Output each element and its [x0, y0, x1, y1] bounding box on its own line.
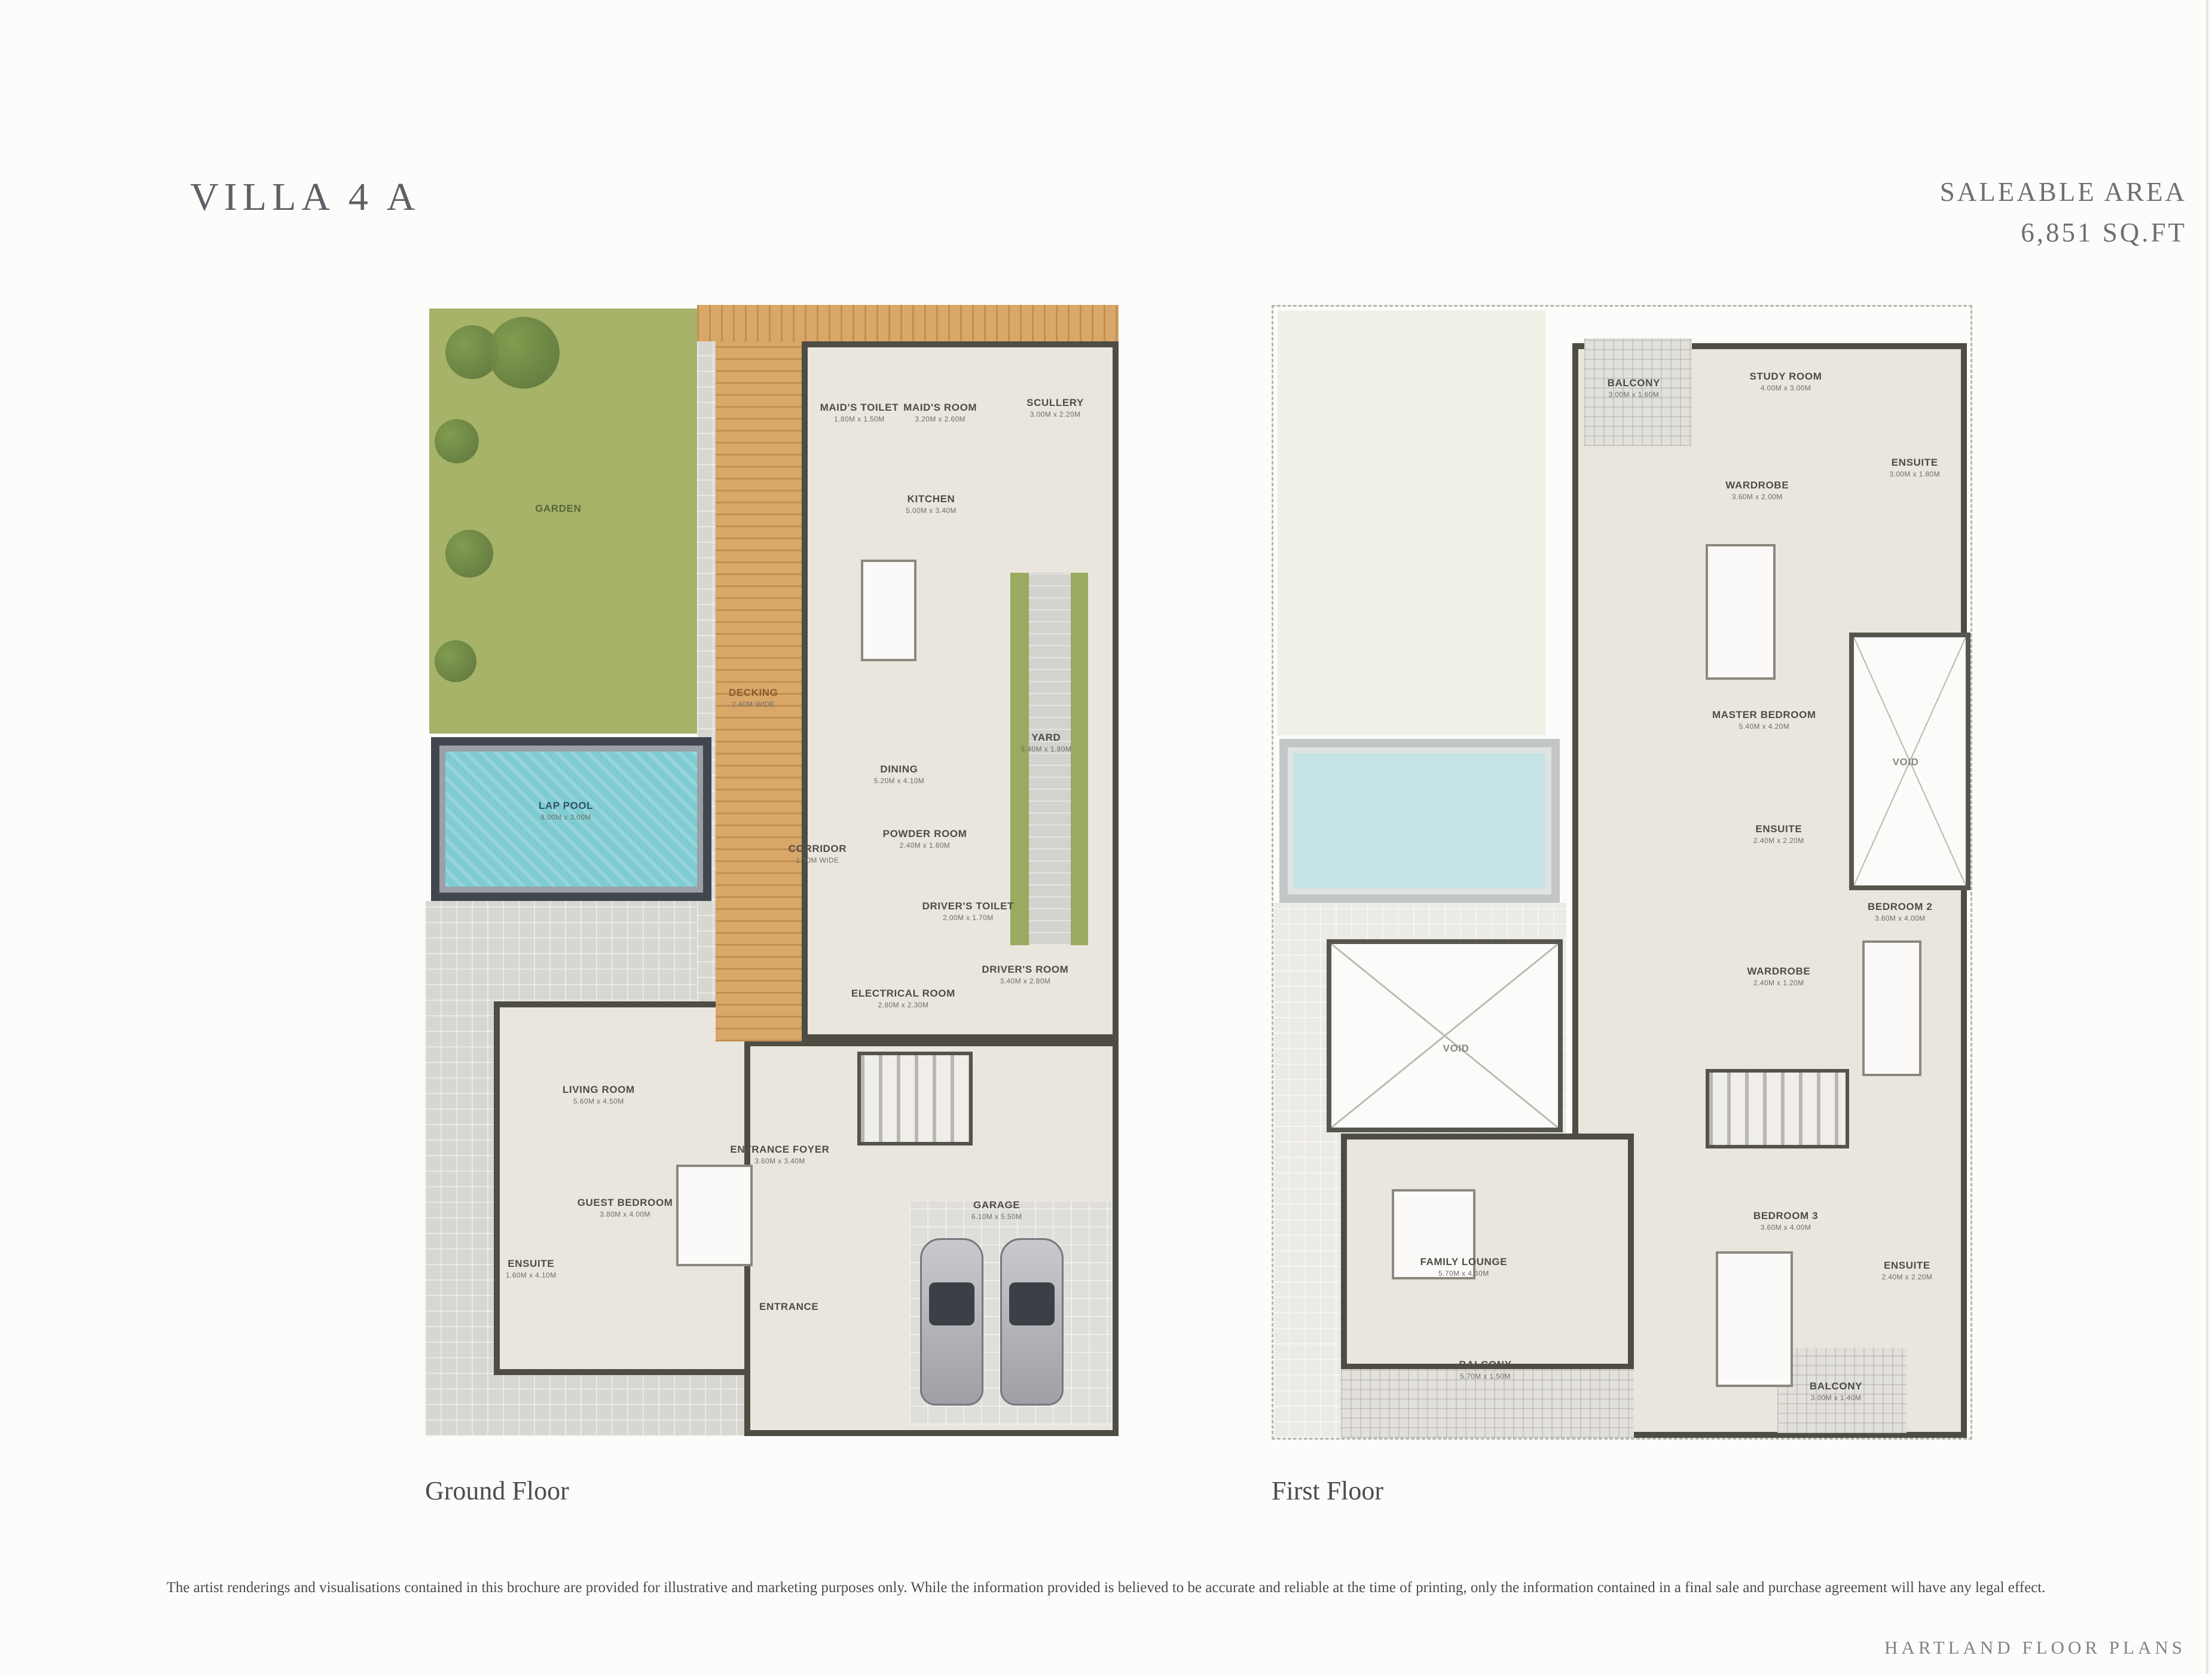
room-dims: 5.00M x 3.40M: [906, 506, 957, 515]
room-name: BALCONY: [1459, 1359, 1511, 1371]
room-dims: 3.00M x 1.60M: [1608, 390, 1660, 399]
room-label-powder-room: POWDER ROOM2.40M x 1.60M: [883, 828, 967, 850]
room-dims: 6.10M x 5.50M: [971, 1212, 1022, 1221]
room-label-balcony: BALCONY3.00M x 1.40M: [1810, 1380, 1862, 1402]
room-name: VOID: [1443, 1043, 1469, 1055]
room-label-scullery: SCULLERY3.00M x 2.20M: [1026, 397, 1084, 418]
room-name: MASTER BEDROOM: [1712, 709, 1816, 721]
room-name: FAMILY LOUNGE: [1420, 1256, 1507, 1268]
first-floor-plan: BALCONY3.00M x 1.60MSTUDY ROOM4.00M x 3.…: [1272, 305, 1972, 1440]
room-dims: 1.80M x 1.50M: [820, 415, 899, 423]
room-dims: 5.70M x 4.60M: [1420, 1269, 1507, 1278]
room-label-entrance: ENTRANCE: [759, 1301, 818, 1313]
saleable-area-value: 6,851 SQ.FT: [1940, 213, 2187, 253]
room-name: WARDROBE: [1725, 479, 1789, 491]
room-dims: 3.60M x 4.00M: [1868, 914, 1932, 922]
room-label-kitchen: KITCHEN5.00M x 3.40M: [906, 493, 957, 515]
brochure-page: VILLA 4 A SALEABLE AREA 6,851 SQ.FT: [0, 0, 2212, 1674]
saleable-area-label: SALEABLE AREA: [1940, 172, 2187, 213]
room-dims: 5.70M x 1.50M: [1459, 1372, 1511, 1380]
ground-floor-labels: GARDENDECKING2.40M WIDELAP POOL8.00M x 3…: [425, 305, 1122, 1436]
room-label-wardrobe: WARDROBE3.60M x 2.00M: [1725, 479, 1789, 501]
room-label-maid-s-room: MAID'S ROOM3.20M x 2.60M: [903, 402, 977, 423]
first-floor-caption: First Floor: [1272, 1476, 1383, 1506]
room-name: VOID: [1893, 756, 1919, 768]
room-dims: 3.40M x 2.80M: [982, 977, 1068, 985]
room-name: GARDEN: [535, 503, 581, 515]
room-dims: 2.40M x 2.20M: [1753, 836, 1804, 845]
room-label-wardrobe: WARDROBE2.40M x 1.20M: [1747, 966, 1810, 987]
page-edge-line: [2206, 0, 2208, 1674]
room-name: ENSUITE: [1753, 823, 1804, 835]
room-dims: 3.60M x 4.00M: [1753, 1223, 1818, 1232]
room-name: MAID'S TOILET: [820, 402, 899, 414]
page-title: VILLA 4 A: [190, 175, 420, 220]
room-label-electrical-room: ELECTRICAL ROOM2.80M x 2.30M: [851, 988, 955, 1009]
room-name: LIVING ROOM: [563, 1084, 635, 1096]
room-label-dining: DINING5.20M x 4.10M: [874, 763, 925, 785]
room-label-maid-s-toilet: MAID'S TOILET1.80M x 1.50M: [820, 402, 899, 423]
room-label-corridor: CORRIDOR1.70M WIDE: [789, 843, 847, 865]
room-dims: 2.80M x 2.30M: [851, 1001, 955, 1009]
room-dims: 3.60M x 3.40M: [730, 1157, 829, 1165]
room-dims: 2.40M x 1.20M: [1747, 979, 1810, 987]
room-dims: 3.80M x 4.00M: [578, 1210, 673, 1218]
room-dims: 2.40M x 2.20M: [1882, 1273, 1933, 1281]
room-name: KITCHEN: [906, 493, 957, 505]
room-label-balcony: BALCONY3.00M x 1.60M: [1608, 377, 1660, 399]
room-name: MAID'S ROOM: [903, 402, 977, 414]
room-name: DECKING: [729, 687, 778, 699]
room-label-guest-bedroom: GUEST BEDROOM3.80M x 4.00M: [578, 1197, 673, 1218]
room-label-void: VOID: [1443, 1043, 1469, 1055]
room-label-master-bedroom: MASTER BEDROOM5.40M x 4.20M: [1712, 709, 1816, 731]
room-name: POWDER ROOM: [883, 828, 967, 840]
room-label-decking: DECKING2.40M WIDE: [729, 687, 778, 708]
room-label-void: VOID: [1893, 756, 1919, 768]
room-dims: 2.40M x 1.60M: [883, 841, 967, 850]
room-dims: 4.00M x 3.00M: [1750, 384, 1822, 392]
room-name: BALCONY: [1810, 1380, 1862, 1392]
ground-floor-plan: GARDENDECKING2.40M WIDELAP POOL8.00M x 3…: [425, 305, 1122, 1436]
room-name: BEDROOM 3: [1753, 1210, 1818, 1222]
room-name: GUEST BEDROOM: [578, 1197, 673, 1209]
room-name: GARAGE: [971, 1199, 1022, 1211]
room-dims: 5.40M x 4.20M: [1712, 722, 1816, 731]
room-label-ensuite: ENSUITE2.40M x 2.20M: [1753, 823, 1804, 845]
room-label-entrance-foyer: ENTRANCE FOYER3.60M x 3.40M: [730, 1144, 829, 1165]
room-dims: 3.00M x 1.80M: [1889, 470, 1940, 478]
room-name: LAP POOL: [539, 800, 593, 812]
room-dims: 3.20M x 2.60M: [903, 415, 977, 423]
room-label-ensuite: ENSUITE2.40M x 2.20M: [1882, 1260, 1933, 1281]
room-label-garage: GARAGE6.10M x 5.50M: [971, 1199, 1022, 1221]
room-name: DRIVER'S TOILET: [922, 900, 1014, 912]
room-name: ELECTRICAL ROOM: [851, 988, 955, 1000]
room-label-living-room: LIVING ROOM5.60M x 4.50M: [563, 1084, 635, 1105]
disclaimer-text: The artist renderings and visualisations…: [0, 1580, 2212, 1596]
room-name: ENTRANCE: [759, 1301, 818, 1313]
room-name: ENSUITE: [506, 1258, 557, 1270]
room-name: ENTRANCE FOYER: [730, 1144, 829, 1156]
room-dims: 3.00M x 2.20M: [1026, 410, 1084, 418]
room-label-lap-pool: LAP POOL8.00M x 3.00M: [539, 800, 593, 821]
room-name: BALCONY: [1608, 377, 1660, 389]
room-label-yard: YARD5.40M x 1.80M: [1021, 732, 1072, 753]
room-dims: 3.00M x 1.40M: [1810, 1394, 1862, 1402]
room-label-family-lounge: FAMILY LOUNGE5.70M x 4.60M: [1420, 1256, 1507, 1278]
room-name: CORRIDOR: [789, 843, 847, 855]
room-dims: 1.60M x 4.10M: [506, 1271, 557, 1279]
room-dims: 5.60M x 4.50M: [563, 1097, 635, 1105]
room-label-ensuite: ENSUITE3.00M x 1.80M: [1889, 457, 1940, 478]
room-name: DRIVER'S ROOM: [982, 964, 1068, 976]
room-dims: 1.70M WIDE: [789, 856, 847, 865]
room-name: ENSUITE: [1882, 1260, 1933, 1272]
room-label-driver-s-room: DRIVER'S ROOM3.40M x 2.80M: [982, 964, 1068, 985]
room-name: STUDY ROOM: [1750, 371, 1822, 383]
room-name: DINING: [874, 763, 925, 775]
room-dims: 5.20M x 4.10M: [874, 777, 925, 785]
room-dims: 8.00M x 3.00M: [539, 813, 593, 821]
room-label-garden: GARDEN: [535, 503, 581, 515]
room-name: BEDROOM 2: [1868, 901, 1932, 913]
saleable-area: SALEABLE AREA 6,851 SQ.FT: [1940, 172, 2187, 253]
room-label-study-room: STUDY ROOM4.00M x 3.00M: [1750, 371, 1822, 392]
room-dims: 3.60M x 2.00M: [1725, 493, 1789, 501]
room-name: WARDROBE: [1747, 966, 1810, 977]
room-label-bedroom-2: BEDROOM 23.60M x 4.00M: [1868, 901, 1932, 922]
room-name: ENSUITE: [1889, 457, 1940, 469]
room-name: YARD: [1021, 732, 1072, 744]
room-name: SCULLERY: [1026, 397, 1084, 409]
room-dims: 2.40M WIDE: [729, 700, 778, 708]
room-label-balcony: BALCONY5.70M x 1.50M: [1459, 1359, 1511, 1380]
room-label-driver-s-toilet: DRIVER'S TOILET2.00M x 1.70M: [922, 900, 1014, 922]
room-label-ensuite: ENSUITE1.60M x 4.10M: [506, 1258, 557, 1279]
ground-floor-caption: Ground Floor: [425, 1476, 569, 1506]
room-dims: 2.00M x 1.70M: [922, 914, 1014, 922]
room-label-bedroom-3: BEDROOM 33.60M x 4.00M: [1753, 1210, 1818, 1232]
room-dims: 5.40M x 1.80M: [1021, 745, 1072, 753]
first-floor-labels: BALCONY3.00M x 1.60MSTUDY ROOM4.00M x 3.…: [1273, 307, 1970, 1438]
brand-footer: HARTLAND FLOOR PLANS: [1884, 1637, 2186, 1658]
